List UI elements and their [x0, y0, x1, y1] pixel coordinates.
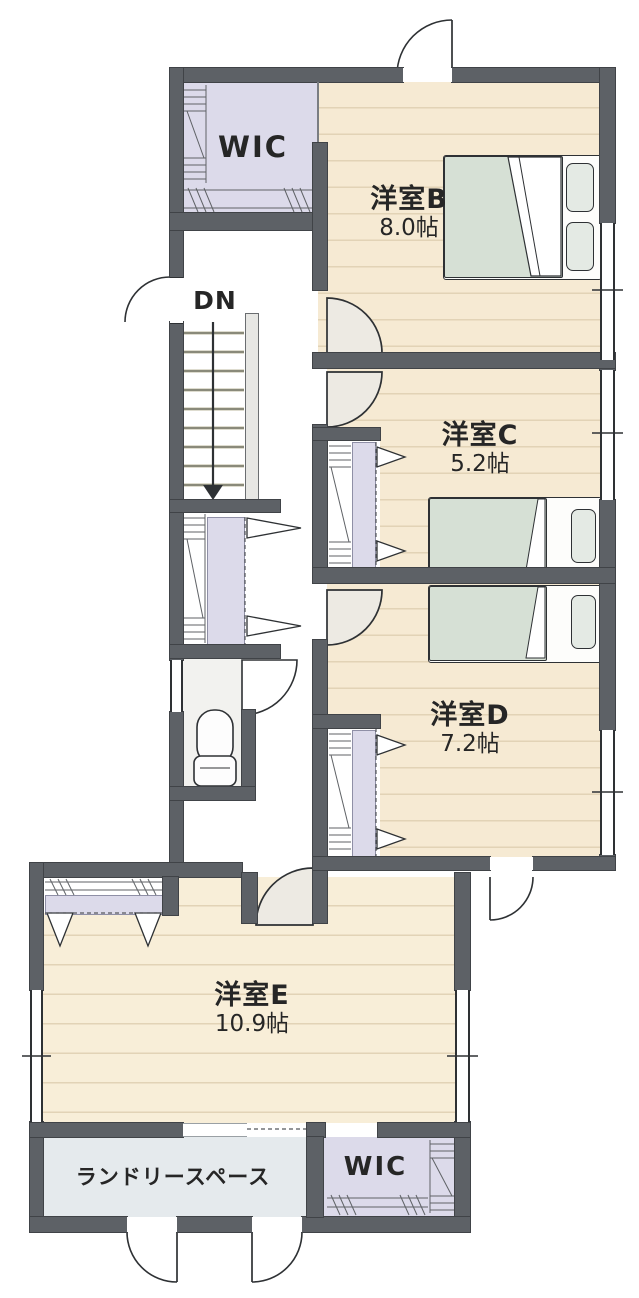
room-name-bedroom-d: 洋室D	[405, 700, 535, 731]
room-size-bedroom-c: 5.2帖	[415, 451, 545, 477]
room-name-bedroom-e: 洋室E	[187, 980, 317, 1011]
stairs-dn-label: DN	[190, 287, 240, 316]
room-name-bedroom-c: 洋室C	[415, 420, 545, 451]
room-size-bedroom-b: 8.0帖	[344, 215, 474, 241]
room-label-wic-upper: WIC	[198, 131, 308, 164]
room-label-wic-lower: WIC	[328, 1153, 423, 1183]
room-size-bedroom-d: 7.2帖	[405, 731, 535, 757]
room-name-bedroom-b: 洋室B	[344, 184, 474, 215]
room-label-bedroom-b: 洋室B 8.0帖	[344, 184, 474, 241]
room-label-laundry: ランドリースペース	[53, 1165, 293, 1189]
floorplan-canvas: WIC 洋室B 8.0帖 DN 洋室C 5.2帖 洋室D 7.2帖 洋室E 10…	[0, 0, 639, 1298]
room-size-bedroom-e: 10.9帖	[187, 1011, 317, 1037]
room-label-bedroom-d: 洋室D 7.2帖	[405, 700, 535, 757]
room-label-bedroom-e: 洋室E 10.9帖	[187, 980, 317, 1037]
window-ticks	[0, 0, 639, 1298]
room-label-bedroom-c: 洋室C 5.2帖	[415, 420, 545, 477]
